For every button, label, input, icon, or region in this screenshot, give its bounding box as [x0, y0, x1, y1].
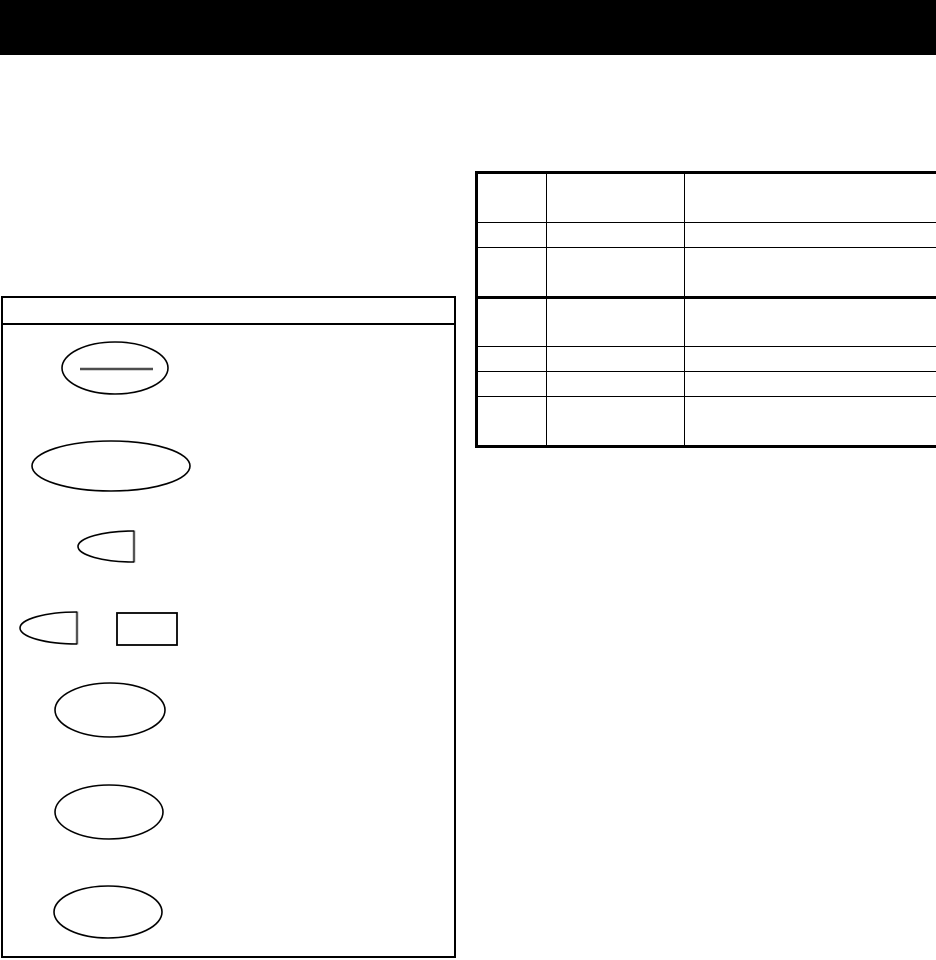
table-cell — [547, 173, 685, 223]
table-cell — [477, 297, 547, 347]
reference-table — [475, 171, 936, 448]
table-cell — [547, 347, 685, 372]
table-cell — [685, 247, 936, 297]
table-cell — [547, 247, 685, 297]
table-cell — [477, 397, 547, 447]
table-cell — [685, 222, 936, 247]
table-cell — [685, 397, 936, 447]
document-page — [0, 0, 936, 960]
table-cell — [477, 372, 547, 397]
table-row — [477, 173, 936, 223]
table-row — [477, 347, 936, 372]
table-cell — [477, 347, 547, 372]
table-cell — [547, 222, 685, 247]
table-cell — [547, 297, 685, 347]
reference-table-body — [477, 173, 936, 447]
table-cell — [685, 297, 936, 347]
table-row — [477, 247, 936, 297]
table-row — [477, 397, 936, 447]
top-header-bar — [0, 0, 936, 55]
panel-title-bar — [3, 298, 454, 325]
table-cell — [685, 372, 936, 397]
table-cell — [685, 347, 936, 372]
table-row — [477, 222, 936, 247]
table-cell — [477, 173, 547, 223]
table-cell — [547, 372, 685, 397]
table-cell — [477, 247, 547, 297]
table-cell — [547, 397, 685, 447]
table-cell — [477, 222, 547, 247]
table-row — [477, 297, 936, 347]
symbol-legend-panel — [1, 296, 456, 958]
table-row — [477, 372, 936, 397]
table-cell — [685, 173, 936, 223]
